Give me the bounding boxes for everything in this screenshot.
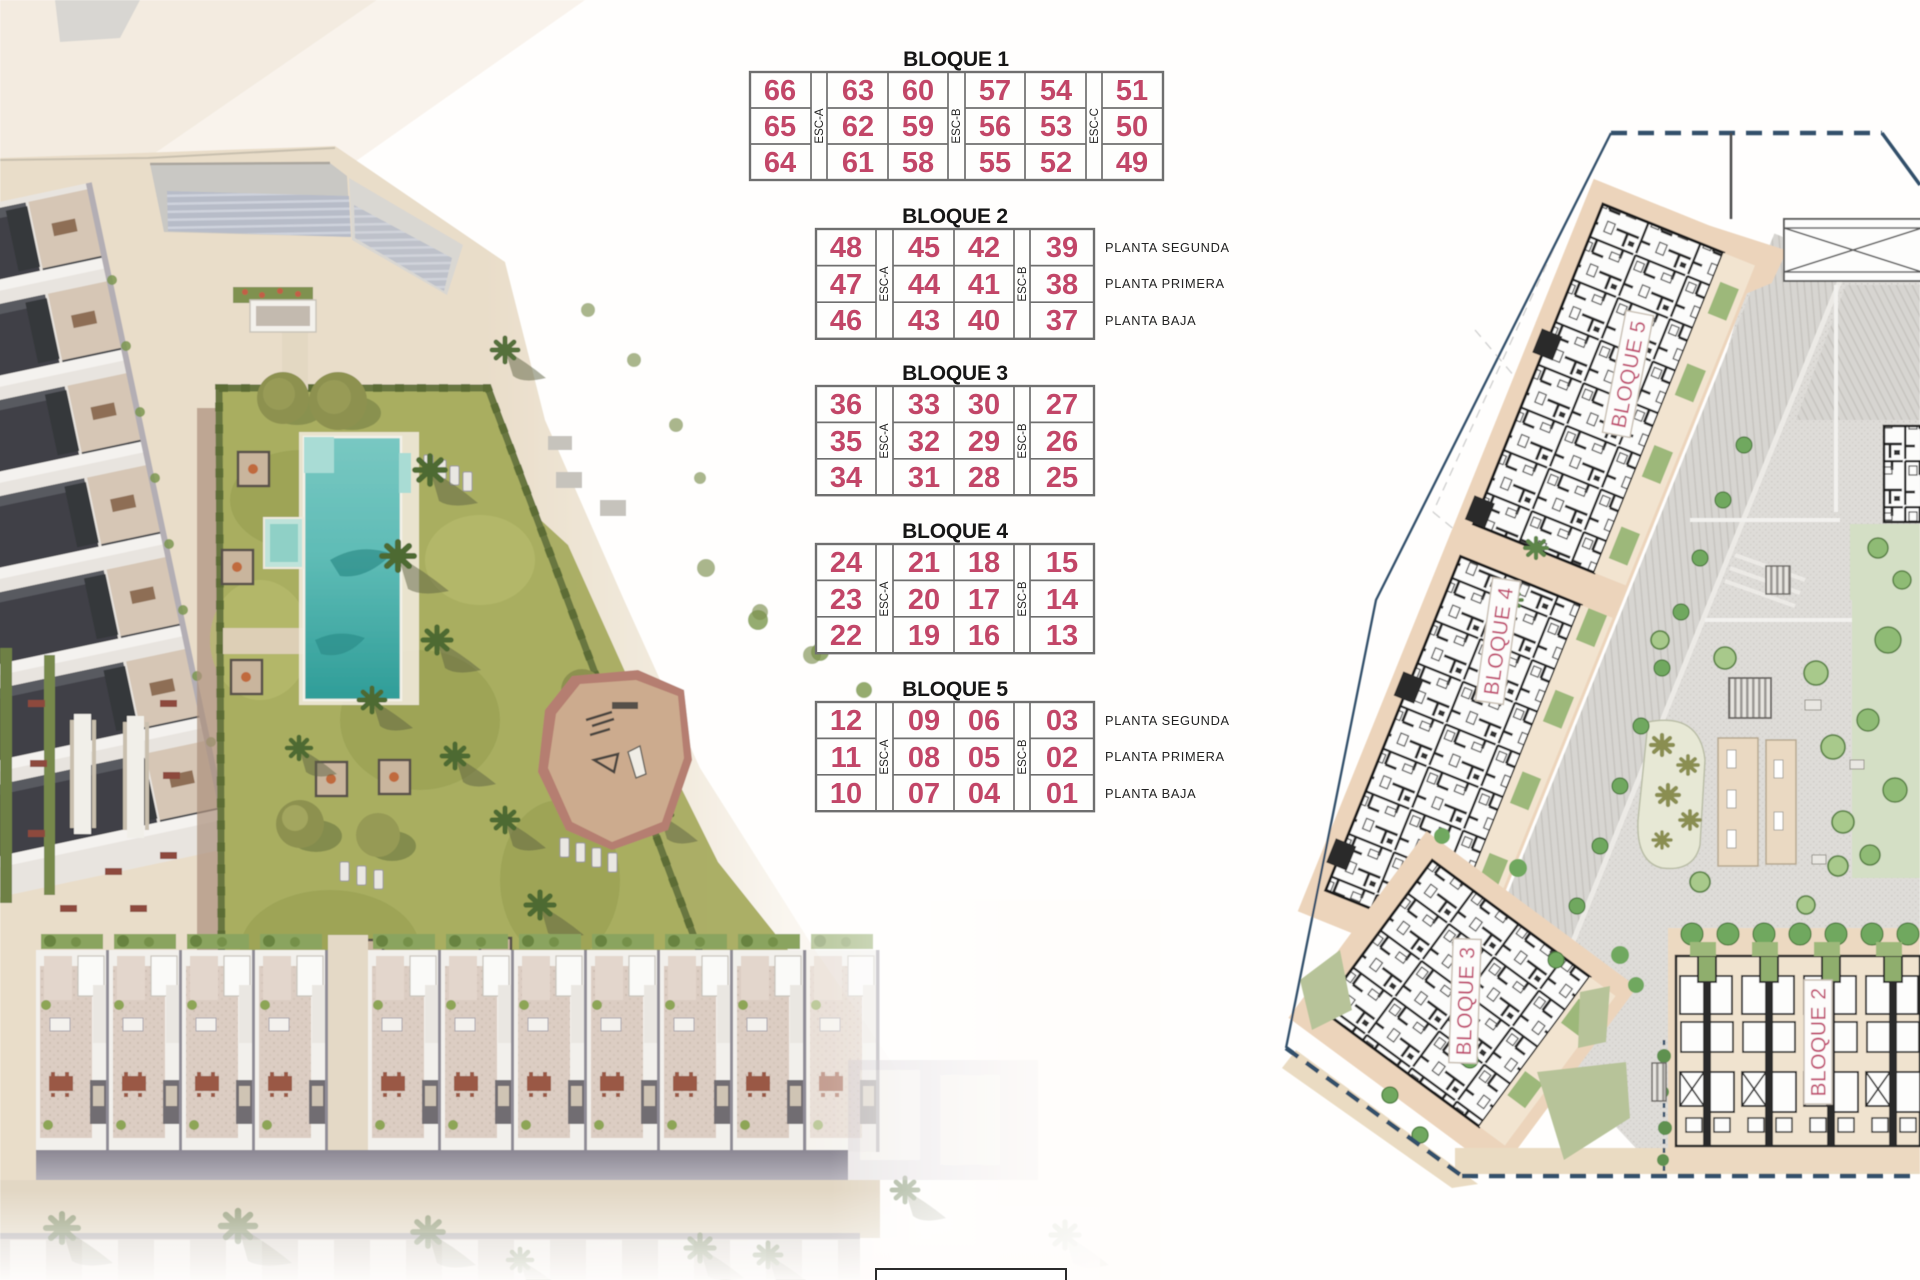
svg-text:23: 23	[830, 584, 862, 616]
svg-text:39: 39	[1046, 232, 1078, 264]
svg-text:25: 25	[1046, 462, 1078, 494]
svg-text:52: 52	[1040, 147, 1072, 179]
svg-text:06: 06	[968, 705, 1000, 737]
svg-text:21: 21	[908, 547, 940, 579]
svg-text:30: 30	[968, 389, 1000, 421]
svg-text:14: 14	[1046, 584, 1078, 616]
svg-text:13: 13	[1046, 620, 1078, 652]
svg-text:42: 42	[968, 232, 1000, 264]
svg-text:49: 49	[1116, 147, 1148, 179]
svg-text:44: 44	[908, 269, 940, 301]
svg-text:07: 07	[908, 778, 940, 810]
svg-text:41: 41	[968, 269, 1000, 301]
svg-text:65: 65	[764, 111, 796, 143]
svg-text:46: 46	[830, 305, 862, 337]
svg-text:43: 43	[908, 305, 940, 337]
svg-text:08: 08	[908, 742, 940, 774]
svg-text:BLOQUE 2: BLOQUE 2	[1808, 987, 1831, 1096]
svg-text:20: 20	[908, 584, 940, 616]
svg-text:55: 55	[979, 147, 1011, 179]
svg-text:ESC-C: ESC-C	[1089, 108, 1101, 144]
svg-text:35: 35	[830, 426, 862, 458]
svg-text:ESC-B: ESC-B	[951, 108, 963, 143]
svg-text:45: 45	[908, 232, 940, 264]
svg-text:53: 53	[1040, 111, 1072, 143]
svg-text:63: 63	[842, 75, 874, 107]
svg-text:BLOQUE 4: BLOQUE 4	[902, 520, 1008, 543]
svg-text:22: 22	[830, 620, 862, 652]
svg-text:50: 50	[1116, 111, 1148, 143]
svg-text:PLANTA BAJA: PLANTA BAJA	[1105, 786, 1196, 801]
svg-text:32: 32	[908, 426, 940, 458]
svg-text:33: 33	[908, 389, 940, 421]
svg-text:03: 03	[1046, 705, 1078, 737]
svg-text:05: 05	[968, 742, 1000, 774]
svg-text:28: 28	[968, 462, 1000, 494]
svg-text:59: 59	[902, 111, 934, 143]
svg-text:PLANTA SEGUNDA: PLANTA SEGUNDA	[1105, 713, 1230, 728]
svg-text:ESC-A: ESC-A	[814, 108, 826, 143]
svg-text:47: 47	[830, 269, 862, 301]
svg-text:ESC-A: ESC-A	[879, 423, 891, 458]
svg-text:ESC-A: ESC-A	[879, 266, 891, 301]
svg-text:PLANTA BAJA: PLANTA BAJA	[1105, 313, 1196, 328]
svg-text:19: 19	[908, 620, 940, 652]
svg-text:11: 11	[831, 742, 862, 774]
svg-text:PLANTA SEGUNDA: PLANTA SEGUNDA	[1105, 240, 1230, 255]
svg-text:61: 61	[842, 147, 874, 179]
svg-text:64: 64	[764, 147, 796, 179]
svg-text:26: 26	[1046, 426, 1078, 458]
svg-text:58: 58	[902, 147, 934, 179]
svg-text:02: 02	[1046, 742, 1078, 774]
svg-text:16: 16	[968, 620, 1000, 652]
svg-text:57: 57	[979, 75, 1011, 107]
svg-text:BLOQUE 1: BLOQUE 1	[903, 48, 1009, 71]
svg-text:PLANTA PRIMERA: PLANTA PRIMERA	[1105, 749, 1225, 764]
svg-text:40: 40	[968, 305, 1000, 337]
svg-text:27: 27	[1046, 389, 1078, 421]
svg-text:34: 34	[830, 462, 862, 494]
svg-text:04: 04	[968, 778, 1000, 810]
svg-text:ESC-A: ESC-A	[879, 739, 891, 774]
svg-text:31: 31	[908, 462, 940, 494]
svg-text:37: 37	[1046, 305, 1078, 337]
svg-text:12: 12	[830, 705, 862, 737]
svg-text:51: 51	[1116, 75, 1148, 107]
svg-text:BLOQUE 5: BLOQUE 5	[902, 678, 1008, 701]
svg-text:56: 56	[979, 111, 1011, 143]
svg-text:01: 01	[1046, 778, 1078, 810]
svg-text:ESC-B: ESC-B	[1017, 266, 1029, 301]
svg-text:36: 36	[830, 389, 862, 421]
svg-text:54: 54	[1040, 75, 1072, 107]
svg-text:09: 09	[908, 705, 940, 737]
svg-text:60: 60	[902, 75, 934, 107]
svg-text:18: 18	[968, 547, 1000, 579]
svg-text:BLOQUE 2: BLOQUE 2	[902, 205, 1008, 228]
svg-text:17: 17	[968, 584, 1000, 616]
svg-text:62: 62	[842, 111, 874, 143]
svg-text:15: 15	[1046, 547, 1078, 579]
svg-text:38: 38	[1046, 269, 1078, 301]
svg-text:ESC-B: ESC-B	[1017, 423, 1029, 458]
svg-text:10: 10	[830, 778, 862, 810]
svg-text:BLOQUE 3: BLOQUE 3	[1453, 946, 1480, 1056]
svg-text:PLANTA PRIMERA: PLANTA PRIMERA	[1105, 276, 1225, 291]
svg-text:66: 66	[764, 75, 796, 107]
svg-text:BLOQUE 3: BLOQUE 3	[902, 362, 1008, 385]
svg-text:ESC-A: ESC-A	[879, 581, 891, 616]
svg-text:ESC-B: ESC-B	[1017, 739, 1029, 774]
svg-text:29: 29	[968, 426, 1000, 458]
svg-text:ESC-B: ESC-B	[1017, 581, 1029, 616]
svg-text:24: 24	[830, 547, 862, 579]
svg-text:48: 48	[830, 232, 862, 264]
